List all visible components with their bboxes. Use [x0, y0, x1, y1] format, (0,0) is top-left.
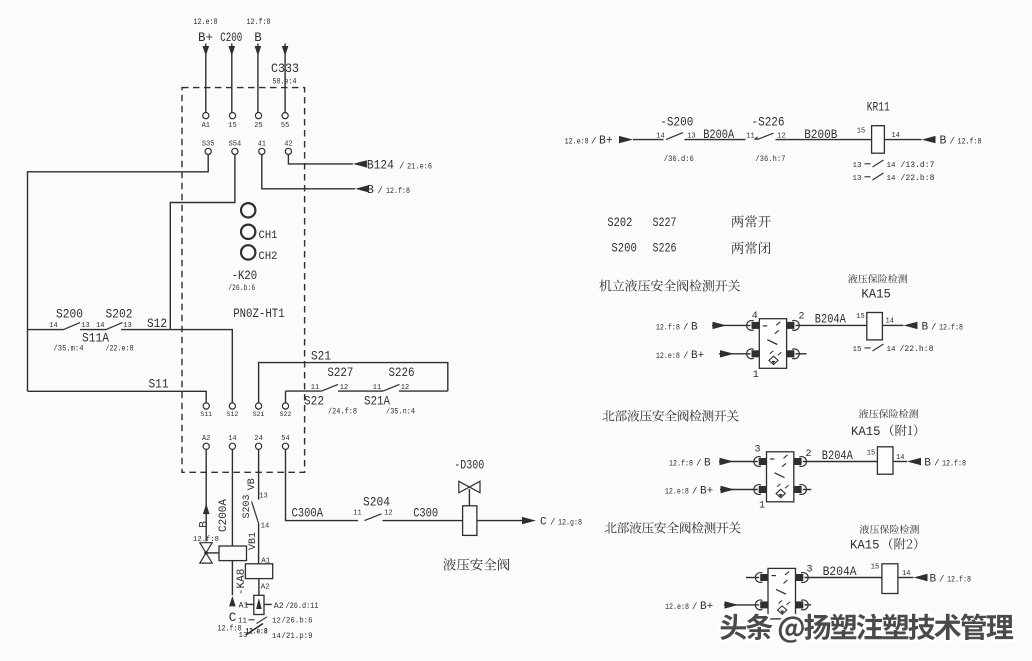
svg-text:12.e:8: 12.e:8 [665, 603, 689, 612]
svg-text:13: 13 [853, 162, 862, 170]
svg-text:B200A: B200A [703, 128, 734, 142]
svg-text:14: 14 [886, 318, 894, 326]
svg-text:B: B [199, 521, 211, 528]
svg-text:C333: C333 [271, 62, 299, 76]
svg-text:S226: S226 [653, 241, 677, 256]
svg-text:12.f:8: 12.f:8 [386, 187, 410, 196]
svg-text:/: / [692, 602, 697, 612]
svg-text:13: 13 [81, 322, 89, 330]
svg-text:C200A: C200A [218, 499, 230, 532]
svg-text:S22: S22 [304, 395, 324, 409]
svg-text:S226: S226 [389, 366, 415, 380]
svg-text:12.e:8: 12.e:8 [665, 488, 689, 497]
svg-text:/: / [692, 487, 697, 497]
svg-text:4: 4 [752, 311, 758, 322]
svg-text:15: 15 [228, 122, 236, 130]
svg-text:14: 14 [49, 322, 57, 330]
svg-text:14: 14 [261, 523, 269, 531]
svg-text:KA15: KA15 [851, 425, 881, 439]
svg-text:50.e:4: 50.e:4 [273, 78, 297, 87]
svg-text:/36.d:6: /36.d:6 [664, 155, 694, 164]
svg-text:13: 13 [259, 493, 267, 501]
svg-text:B+: B+ [198, 31, 213, 45]
svg-text:54: 54 [281, 435, 289, 443]
svg-text:12.e:8: 12.e:8 [656, 352, 680, 361]
svg-text:B204A: B204A [815, 313, 846, 327]
svg-text:12.e:8: 12.e:8 [246, 628, 268, 637]
svg-text:VB1: VB1 [248, 532, 259, 550]
svg-text:12: 12 [272, 618, 281, 626]
svg-text:S202: S202 [106, 308, 133, 322]
svg-text:A2: A2 [202, 435, 210, 443]
svg-text:S12: S12 [227, 411, 239, 418]
svg-text:3: 3 [754, 445, 760, 456]
svg-text:S227: S227 [327, 366, 353, 380]
svg-text:/: / [683, 323, 688, 333]
svg-text:/22.h:8: /22.h:8 [900, 345, 934, 354]
svg-text:C300A: C300A [292, 507, 324, 521]
svg-text:C300: C300 [413, 507, 438, 521]
svg-text:/: / [683, 351, 688, 361]
svg-text:S35: S35 [202, 141, 215, 149]
svg-text:B: B [704, 458, 711, 470]
svg-text:S21A: S21A [364, 395, 390, 409]
svg-text:3: 3 [806, 565, 812, 576]
svg-text:/: / [950, 137, 955, 147]
svg-text:A2: A2 [274, 602, 284, 611]
svg-text:VB: VB [247, 478, 258, 490]
svg-text:S203: S203 [242, 494, 253, 518]
svg-text:12.e:8: 12.e:8 [194, 18, 218, 27]
svg-text:15: 15 [853, 346, 862, 354]
svg-text:14: 14 [887, 175, 896, 183]
svg-text:24: 24 [254, 435, 262, 443]
svg-text:12.f:8: 12.f:8 [669, 460, 693, 469]
svg-text:1: 1 [759, 501, 765, 512]
svg-text:KA15: KA15 [861, 288, 891, 302]
svg-text:2: 2 [805, 449, 811, 460]
svg-text:12: 12 [384, 510, 392, 518]
svg-text:14: 14 [656, 133, 664, 141]
svg-text:15: 15 [856, 313, 864, 321]
svg-text:B: B [367, 184, 374, 197]
svg-text:55: 55 [281, 122, 289, 130]
svg-text:KA15: KA15 [850, 539, 880, 553]
svg-text:B: B [254, 31, 262, 45]
svg-text:/26.b:6: /26.b:6 [282, 617, 313, 626]
svg-text:B+: B+ [599, 135, 613, 148]
svg-text:CH1: CH1 [259, 230, 278, 242]
svg-text:S11: S11 [200, 411, 212, 418]
svg-text:S11A: S11A [82, 332, 109, 346]
svg-text:B: B [940, 135, 947, 148]
svg-text:S200: S200 [56, 308, 83, 322]
svg-text:B+: B+ [700, 601, 713, 613]
svg-text:2: 2 [798, 312, 804, 323]
svg-text:14: 14 [96, 322, 104, 330]
svg-text:11: 11 [746, 133, 754, 141]
svg-text:/: / [378, 186, 383, 196]
svg-text:/26.b:6: /26.b:6 [228, 284, 255, 293]
svg-text:B: B [922, 322, 929, 334]
svg-text:14: 14 [887, 346, 896, 354]
svg-text:11: 11 [353, 510, 361, 518]
svg-text:S21: S21 [253, 411, 265, 418]
svg-text:12.f:8: 12.f:8 [942, 460, 966, 469]
svg-text:41: 41 [258, 141, 266, 149]
svg-text:13: 13 [853, 175, 862, 183]
svg-text:CH2: CH2 [259, 251, 278, 263]
svg-text:12: 12 [401, 384, 409, 392]
svg-text:11: 11 [373, 384, 381, 392]
svg-text:/21.p:9: /21.p:9 [282, 632, 313, 641]
svg-text:/22.b:8: /22.b:8 [901, 174, 935, 183]
svg-text:-S200: -S200 [660, 116, 693, 130]
svg-text:/: / [591, 137, 596, 147]
svg-text:/35.m:4: /35.m:4 [54, 345, 84, 354]
svg-text:B: B [930, 574, 937, 586]
svg-text:PN0Z-HT1: PN0Z-HT1 [233, 306, 285, 321]
svg-text:S21: S21 [311, 350, 331, 364]
svg-text:S204: S204 [363, 496, 390, 510]
svg-text:S202: S202 [607, 215, 632, 230]
svg-text:S11: S11 [149, 378, 169, 392]
svg-text:15: 15 [867, 450, 875, 458]
svg-text:14: 14 [272, 633, 281, 641]
svg-text:14: 14 [892, 132, 900, 140]
svg-text:12.g:8: 12.g:8 [558, 519, 582, 528]
svg-text:B: B [924, 458, 931, 470]
svg-text:/: / [399, 162, 404, 172]
svg-text:C: C [229, 611, 237, 625]
svg-text:C200: C200 [220, 31, 242, 45]
svg-text:/22.e:8: /22.e:8 [106, 345, 134, 354]
svg-text:/26.d:11: /26.d:11 [286, 602, 319, 611]
svg-text:21.e:6: 21.e:6 [407, 163, 432, 172]
svg-text:11: 11 [311, 384, 319, 392]
svg-text:B: B [691, 322, 698, 334]
svg-text:-S226: -S226 [752, 116, 785, 130]
svg-text:/24.f:8: /24.f:8 [328, 408, 357, 417]
svg-text:/: / [550, 518, 555, 528]
svg-text:1: 1 [753, 370, 759, 381]
svg-text:12.f:8: 12.f:8 [947, 576, 971, 585]
svg-text:12: 12 [340, 384, 348, 392]
svg-text:A1: A1 [202, 122, 210, 130]
svg-text:15: 15 [871, 564, 879, 572]
svg-text:12.f:8: 12.f:8 [958, 138, 982, 147]
svg-text:15: 15 [857, 128, 865, 136]
svg-text:KR11: KR11 [867, 101, 890, 115]
svg-text:/: / [696, 459, 701, 469]
svg-text:B204A: B204A [823, 565, 857, 579]
svg-text:-D300: -D300 [454, 459, 484, 473]
svg-text:S227: S227 [653, 215, 677, 230]
svg-text:B+: B+ [691, 350, 704, 362]
svg-text:/13.d:7: /13.d:7 [901, 161, 935, 170]
svg-text:/: / [939, 575, 944, 585]
svg-text:S22: S22 [280, 411, 292, 418]
svg-text:/36.h:7: /36.h:7 [755, 155, 785, 164]
svg-text:S200: S200 [611, 241, 637, 256]
svg-text:11: 11 [238, 618, 247, 626]
svg-text:/: / [934, 459, 939, 469]
svg-text:B200B: B200B [804, 128, 837, 142]
svg-text:C: C [540, 517, 547, 529]
svg-text:12.f:8: 12.f:8 [939, 324, 963, 333]
svg-text:B124: B124 [367, 159, 394, 173]
svg-text:25: 25 [254, 122, 262, 130]
svg-text:S54: S54 [229, 141, 242, 149]
svg-text:A2: A2 [261, 584, 270, 592]
svg-text:/: / [931, 323, 936, 333]
svg-text:12.f:8: 12.f:8 [247, 18, 271, 27]
svg-text:S12: S12 [147, 317, 167, 331]
svg-text:12.f:8: 12.f:8 [656, 324, 680, 333]
svg-text:14: 14 [887, 162, 896, 170]
svg-text:B+: B+ [700, 486, 713, 498]
svg-text:13: 13 [123, 322, 131, 330]
svg-text:42: 42 [284, 141, 292, 149]
svg-text:A1: A1 [239, 602, 249, 611]
svg-text:14: 14 [228, 435, 236, 443]
svg-text:12.e:8: 12.e:8 [565, 138, 589, 147]
svg-text:B204A: B204A [822, 449, 853, 463]
svg-text:-K20: -K20 [232, 269, 258, 283]
svg-text:/35.n:4: /35.n:4 [386, 408, 415, 417]
